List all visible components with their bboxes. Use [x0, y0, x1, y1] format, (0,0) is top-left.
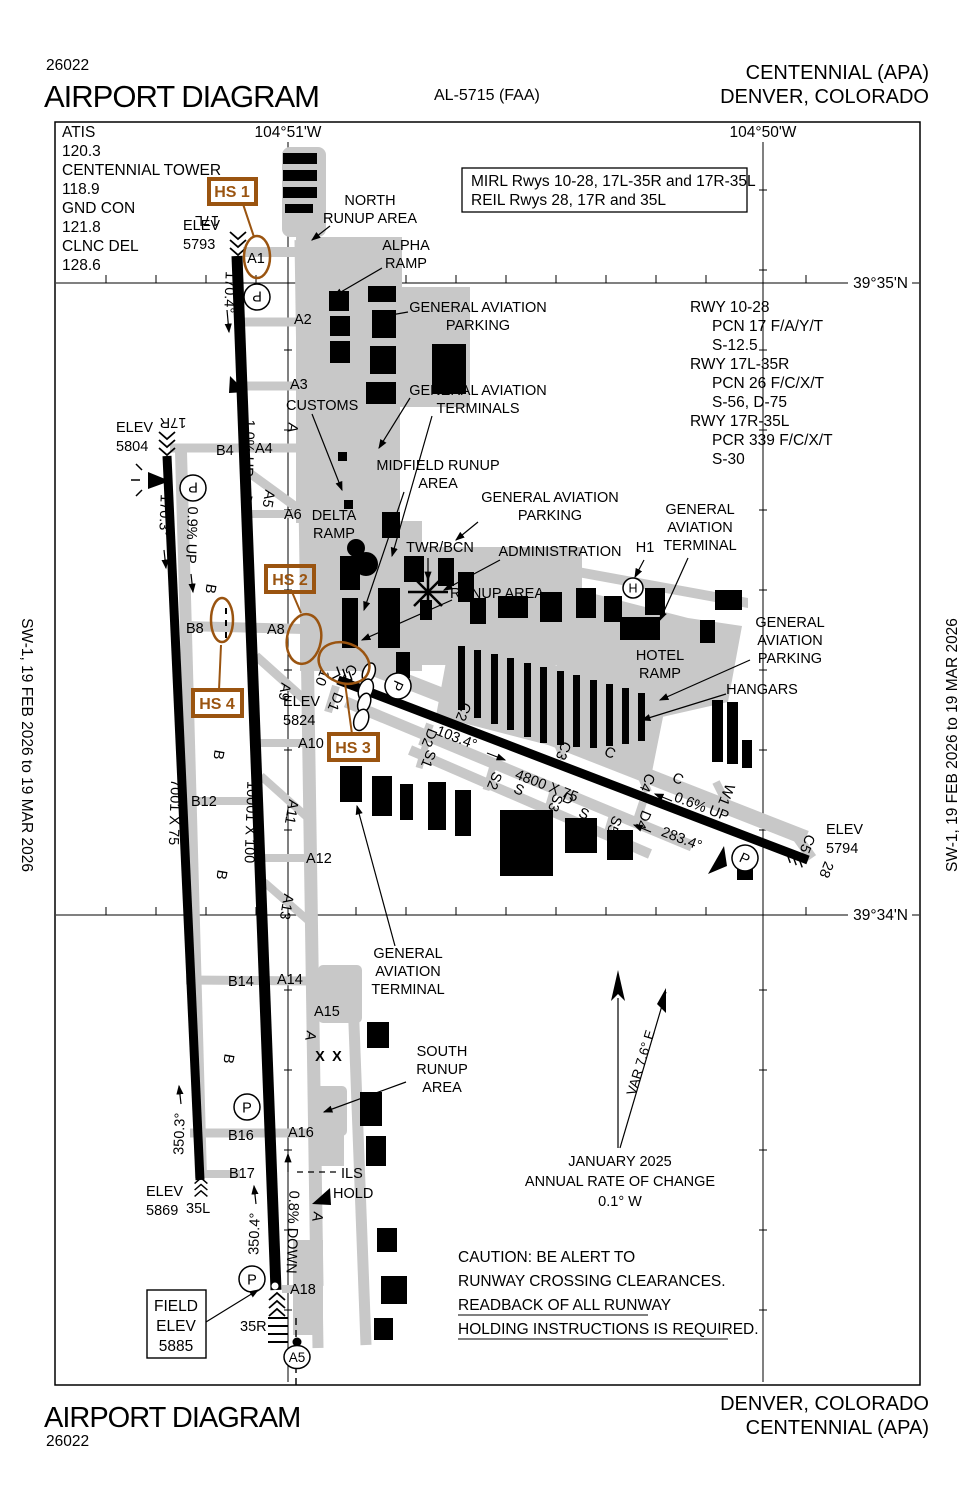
customs-label: CUSTOMS [286, 398, 358, 414]
city-top: DENVER, COLORADO [720, 86, 929, 108]
ga-parking-north-label: GENERAL AVIATION [409, 300, 547, 316]
parking-symbol: P [244, 284, 270, 310]
ga-terminal-right-label: TERMINAL [663, 538, 736, 554]
ga-parking-mid-label: PARKING [518, 508, 582, 524]
ga-terminals-label: GENERAL AVIATION [409, 383, 547, 399]
lighting-line-1: MIRL Rwys 10-28, 17L-35R and 17R-35L [471, 173, 756, 190]
twy-a14: A14 [277, 972, 303, 988]
al-number: AL-5715 (FAA) [434, 87, 540, 104]
ga-terminal-bottom-label: AVIATION [375, 964, 441, 980]
rwy-data-line: PCR 339 F/C/X/T [712, 432, 833, 449]
magnetic-variation-note: VAR 7.6° E JANUARY 2025 ANNUAL RATE OF C… [525, 1028, 715, 1210]
elev-10-value: 5824 [283, 713, 315, 729]
rwy-id-28: 28 [815, 859, 836, 880]
edge-note-right: SW-1, 19 FEB 2026 to 19 MAR 2026 [944, 618, 961, 872]
lighting-box: MIRL Rwys 10-28, 17L-35R and 17R-35L REI… [462, 168, 756, 212]
hangars-label: HANGARS [726, 682, 798, 698]
var-date: JANUARY 2025 [568, 1154, 671, 1170]
twy-b: B [201, 583, 218, 595]
windcone-icon [708, 846, 727, 874]
lon-104-51: 104°51'W [255, 124, 322, 141]
ga-terminal-bottom-label: GENERAL [373, 946, 442, 962]
freq-line: CENTENNIAL TOWER [62, 162, 221, 179]
closed-taxiway-x: X [315, 1049, 325, 1065]
parking-symbol: P [180, 475, 206, 501]
rwy-data-line: S-56, D-75 [712, 394, 787, 411]
hs4-label: HS 4 [199, 696, 235, 713]
ga-parking-mid-label: GENERAL AVIATION [481, 490, 619, 506]
threshold-35l [195, 1178, 208, 1196]
svg-text:H: H [628, 582, 637, 596]
twy-a1: A1 [247, 251, 265, 267]
freq-line: 118.9 [62, 181, 100, 198]
twy-a2: A2 [294, 312, 312, 328]
dim-17l-35r: 10001 X 100 [241, 781, 260, 864]
twy-a6: A6 [284, 507, 302, 523]
hs3-label: HS 3 [335, 740, 371, 757]
ils-hold-label: HOLD [333, 1186, 373, 1202]
ga-terminal-right-label: AVIATION [667, 520, 733, 536]
caution-line: RUNWAY CROSSING CLEARANCES. [458, 1273, 726, 1290]
hdg-170-4: 170.4° [220, 271, 237, 314]
lighting-line-2: REIL Rwys 28, 17R and 35L [471, 192, 666, 209]
midfield-runup-label: AREA [418, 476, 458, 492]
twy-a3: A3 [290, 377, 308, 393]
twy-a10: A10 [298, 736, 324, 752]
twy-b16: B16 [228, 1128, 254, 1144]
rwy-data-line: PCN 26 F/C/X/T [712, 375, 824, 392]
twy-b: B [219, 1053, 236, 1065]
freq-line: 121.8 [62, 219, 101, 236]
hotel-ramp-label: RAMP [639, 666, 681, 682]
hs2-label: HS 2 [272, 572, 308, 589]
parking-symbol: P [239, 1266, 265, 1292]
rwy-id-17r: 17R [160, 414, 187, 430]
ga-terminal-right-label: GENERAL [665, 502, 734, 518]
hdg-350-3: 350.3° [171, 1113, 188, 1156]
chart-code-top: 26022 [46, 57, 89, 74]
header: 26022 AIRPORT DIAGRAM AL-5715 (FAA) CENT… [44, 57, 929, 114]
twy-a12: A12 [306, 851, 332, 867]
field-elev-line: FIELD [154, 1298, 198, 1315]
parking-symbol: P [728, 841, 763, 876]
helipad-symbol: H [623, 578, 643, 598]
caution-note: CAUTION: BE ALERT TO RUNWAY CROSSING CLE… [458, 1249, 759, 1339]
delta-ramp-label: DELTA [312, 508, 357, 524]
caution-line: READBACK OF ALL RUNWAY [458, 1297, 671, 1314]
twy-b: B [212, 869, 229, 881]
freq-line: ATIS [62, 124, 95, 141]
twy-a18: A18 [290, 1282, 316, 1298]
twy-b: B [209, 749, 226, 761]
north-runup-label: RUNUP AREA [323, 211, 417, 227]
south-runup-label: RUNUP [416, 1062, 468, 1078]
slope-0-8: 0.8% DOWN [283, 1190, 302, 1274]
rwy-id-35l: 35L [186, 1201, 210, 1217]
alpha-ramp-label: RAMP [385, 256, 427, 272]
page-title: AIRPORT DIAGRAM [44, 79, 319, 114]
var-label: VAR 7.6° E [624, 1028, 658, 1097]
taxiway-a5-circle-label: A5 [289, 1350, 306, 1365]
twy-a11: A11 [281, 798, 301, 825]
elev-35l: ELEV [146, 1184, 183, 1200]
hdg-350-4: 350.4° [246, 1213, 263, 1256]
svg-text:P: P [247, 1273, 257, 1289]
closed-taxiway-x: X [332, 1049, 342, 1065]
field-elev-box: FIELD ELEV 5885 [147, 1290, 206, 1358]
elev-28: ELEV [826, 822, 863, 838]
var-change: 0.1° W [598, 1194, 642, 1210]
twy-a5: A5 [259, 489, 278, 509]
freq-line: GND CON [62, 200, 135, 217]
hotel-ramp-label: HOTEL [636, 648, 684, 664]
twy-a: A [301, 1030, 318, 1043]
ga-terminals-label: TERMINALS [437, 401, 520, 417]
twy-b14: B14 [228, 974, 254, 990]
caution-line: HOLDING INSTRUCTIONS IS REQUIRED. [458, 1321, 759, 1338]
south-runup-label: SOUTH [417, 1044, 468, 1060]
footer-title: AIRPORT DIAGRAM [44, 1402, 300, 1434]
hdg-170-3: 170.3° [155, 494, 172, 537]
twy-a: A [283, 422, 300, 435]
dim-17r-35l: 7001 X 75 [165, 779, 183, 846]
elev-17l-value: 5793 [183, 237, 215, 253]
svg-text:P: P [188, 479, 198, 495]
rwy-data-line: RWY 10-28 [690, 299, 770, 316]
footer: AIRPORT DIAGRAM 26022 DENVER, COLORADO C… [44, 1393, 929, 1450]
rwy-data-line: PCN 17 F/A/Y/T [712, 318, 824, 335]
slope-0-9: 0.9% UP [182, 506, 200, 564]
lon-104-50: 104°50'W [730, 124, 797, 141]
twy-a8: A8 [267, 622, 285, 638]
administration-label: ADMINISTRATION [499, 544, 622, 560]
rwy-id-35r: 35R [240, 1319, 267, 1335]
freq-line: 120.3 [62, 143, 101, 160]
alpha-ramp-label: ALPHA [382, 238, 430, 254]
twy-a9: A9 [275, 682, 294, 702]
hs1-label: HS 1 [214, 184, 250, 201]
freq-line: 128.6 [62, 257, 101, 274]
runway-end-dot [272, 1283, 279, 1290]
twy-a15: A15 [314, 1004, 340, 1020]
ga-parking-right-label: GENERAL [755, 615, 824, 631]
field-elev-line: ELEV [156, 1318, 196, 1335]
twr-bcn-label: TWR/BCN [406, 540, 474, 556]
chart-code-bottom: 26022 [46, 1433, 89, 1450]
airport-name-bottom: CENTENNIAL (APA) [746, 1417, 929, 1439]
twy-b12: B12 [191, 794, 217, 810]
freq-line: CLNC DEL [62, 238, 139, 255]
elev-28-value: 5794 [826, 841, 858, 857]
airport-name-top: CENTENNIAL (APA) [746, 62, 929, 84]
twy-b17: B17 [229, 1166, 255, 1182]
hdg-283-4: 283.4° [659, 824, 704, 854]
south-runup-label: AREA [422, 1080, 462, 1096]
elev-35l-value: 5869 [146, 1203, 178, 1219]
ils-hold-bars [268, 1318, 288, 1342]
runup-area-label: RUNUP AREA [450, 586, 544, 602]
twy-a16: A16 [288, 1125, 314, 1141]
ga-parking-north-label: PARKING [446, 318, 510, 334]
twy-b8: B8 [186, 621, 204, 637]
ga-parking-right-label: PARKING [758, 651, 822, 667]
lat-39-35: 39°35'N [853, 275, 908, 292]
midfield-runup-label: MIDFIELD RUNUP [376, 458, 499, 474]
edge-note-left: SW-1, 19 FEB 2026 to 19 MAR 2026 [18, 618, 35, 872]
ga-terminal-bottom-label: TERMINAL [371, 982, 444, 998]
threshold-35r [269, 1293, 285, 1316]
ils-hold-label: ILS [341, 1166, 363, 1182]
airport-diagram-page: 26022 AIRPORT DIAGRAM AL-5715 (FAA) CENT… [0, 0, 978, 1500]
north-arrow [611, 970, 625, 1148]
elev-17r: ELEV [116, 420, 153, 436]
svg-text:P: P [252, 288, 262, 304]
ga-parking-right-label: AVIATION [757, 633, 823, 649]
field-elev-line: 5885 [159, 1338, 193, 1355]
rwy-data-line: RWY 17R-35L [690, 413, 790, 430]
twy-a4: A4 [255, 441, 273, 457]
rwy-data-line: RWY 17L-35R [690, 356, 789, 373]
svg-text:P: P [242, 1101, 252, 1117]
parking-symbol: P [234, 1094, 260, 1120]
runway-data-block: RWY 10-28 PCN 17 F/A/Y/T S-12.5 RWY 17L-… [690, 299, 833, 468]
rwy-data-line: S-30 [712, 451, 745, 468]
delta-ramp-label: RAMP [313, 526, 355, 542]
rwy-id-17l: 17L [195, 212, 219, 228]
north-runup-label: NORTH [344, 193, 395, 209]
airport-diagram-canvas: 26022 AIRPORT DIAGRAM AL-5715 (FAA) CENT… [0, 0, 978, 1500]
lat-39-34: 39°34'N [853, 907, 908, 924]
h1-label: H1 [636, 540, 655, 556]
var-rate: ANNUAL RATE OF CHANGE [525, 1174, 715, 1190]
twy-b4: B4 [216, 443, 234, 459]
elev-17r-value: 5804 [116, 439, 148, 455]
rwy-data-line: S-12.5 [712, 337, 758, 354]
caution-line: CAUTION: BE ALERT TO [458, 1249, 635, 1266]
city-bottom: DENVER, COLORADO [720, 1393, 929, 1415]
